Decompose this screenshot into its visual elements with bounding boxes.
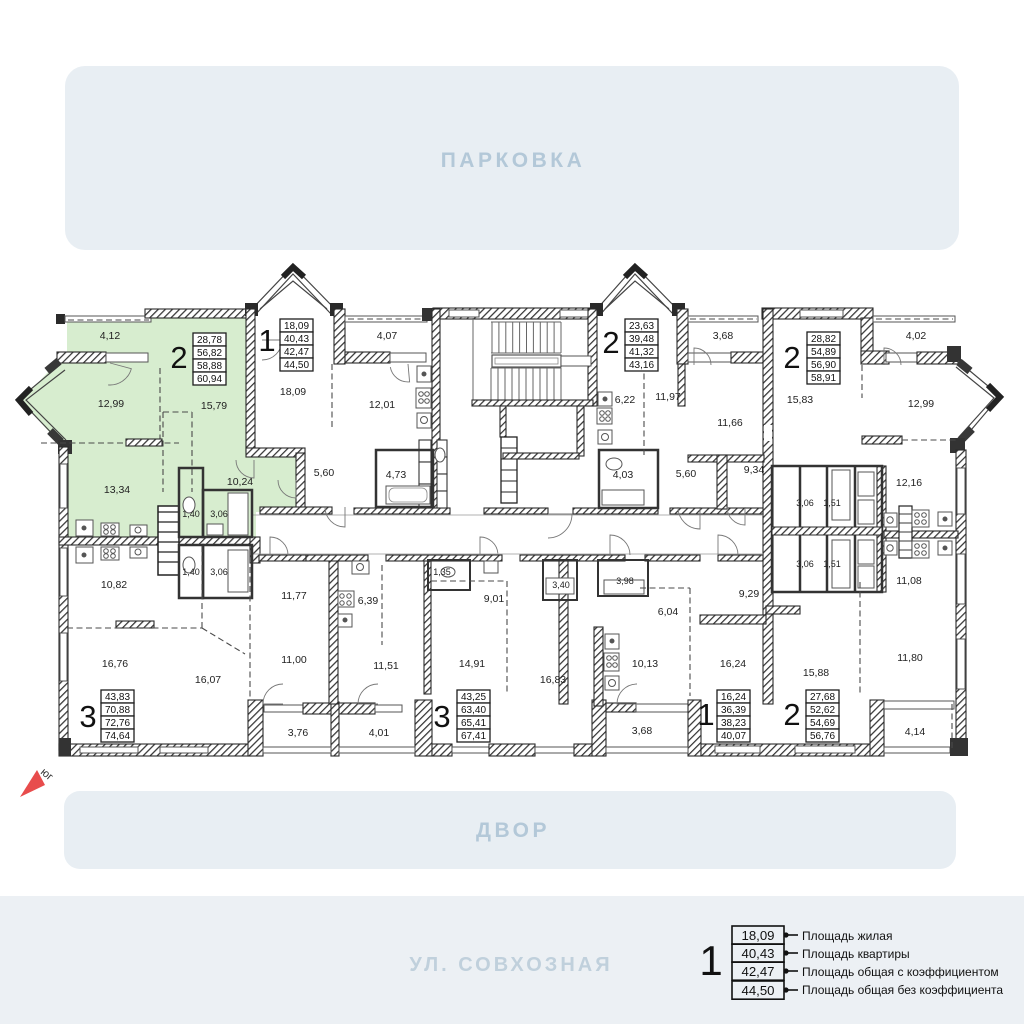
svg-text:ПАРКОВКА: ПАРКОВКА bbox=[441, 149, 586, 172]
svg-text:70,88: 70,88 bbox=[105, 705, 130, 716]
svg-text:18,09: 18,09 bbox=[741, 928, 774, 943]
svg-text:16,83: 16,83 bbox=[540, 674, 566, 686]
svg-text:Площадь квартиры: Площадь квартиры bbox=[802, 947, 910, 961]
svg-text:3,98: 3,98 bbox=[616, 576, 634, 586]
svg-text:16,24: 16,24 bbox=[721, 692, 746, 703]
svg-text:11,00: 11,00 bbox=[281, 654, 307, 666]
svg-text:11,77: 11,77 bbox=[281, 590, 307, 602]
svg-text:11,51: 11,51 bbox=[373, 660, 399, 672]
svg-text:5,60: 5,60 bbox=[676, 468, 697, 480]
svg-text:Площадь общая без коэффициента: Площадь общая без коэффициента bbox=[802, 983, 1003, 997]
svg-text:1,51: 1,51 bbox=[823, 498, 841, 508]
svg-text:60,94: 60,94 bbox=[197, 374, 222, 385]
svg-text:3: 3 bbox=[79, 699, 96, 734]
svg-text:4,12: 4,12 bbox=[100, 330, 121, 342]
svg-text:6,22: 6,22 bbox=[615, 394, 636, 406]
svg-text:44,50: 44,50 bbox=[284, 360, 309, 371]
svg-text:40,43: 40,43 bbox=[741, 946, 774, 961]
svg-text:72,76: 72,76 bbox=[105, 718, 130, 729]
svg-text:1: 1 bbox=[258, 323, 275, 358]
svg-text:40,07: 40,07 bbox=[721, 731, 746, 742]
svg-text:1: 1 bbox=[697, 697, 714, 732]
svg-text:2: 2 bbox=[602, 325, 619, 360]
svg-text:65,41: 65,41 bbox=[461, 718, 486, 729]
svg-text:16,24: 16,24 bbox=[720, 658, 746, 670]
svg-text:16,07: 16,07 bbox=[195, 674, 221, 686]
svg-text:12,01: 12,01 bbox=[369, 399, 395, 411]
svg-text:2: 2 bbox=[783, 340, 800, 375]
svg-text:54,69: 54,69 bbox=[810, 718, 835, 729]
svg-text:3,68: 3,68 bbox=[632, 725, 653, 737]
svg-text:Площадь общая с коэффициентом: Площадь общая с коэффициентом bbox=[802, 965, 999, 979]
svg-text:42,47: 42,47 bbox=[284, 347, 309, 358]
svg-text:10,13: 10,13 bbox=[632, 658, 658, 670]
svg-text:28,78: 28,78 bbox=[197, 335, 222, 346]
svg-text:1,35: 1,35 bbox=[433, 567, 451, 577]
svg-text:12,99: 12,99 bbox=[908, 398, 934, 410]
svg-text:2: 2 bbox=[170, 340, 187, 375]
svg-text:13,34: 13,34 bbox=[104, 484, 130, 496]
svg-text:56,82: 56,82 bbox=[197, 348, 222, 359]
svg-text:3,06: 3,06 bbox=[210, 509, 228, 519]
svg-text:10,24: 10,24 bbox=[227, 476, 253, 488]
svg-text:4,07: 4,07 bbox=[377, 330, 398, 342]
svg-text:58,88: 58,88 bbox=[197, 361, 222, 372]
svg-text:5,60: 5,60 bbox=[314, 467, 335, 479]
svg-text:42,47: 42,47 bbox=[741, 964, 774, 979]
svg-text:1,51: 1,51 bbox=[823, 559, 841, 569]
svg-text:3,06: 3,06 bbox=[796, 559, 814, 569]
svg-text:3,06: 3,06 bbox=[210, 567, 228, 577]
svg-text:4,02: 4,02 bbox=[906, 330, 927, 342]
svg-text:9,34: 9,34 bbox=[744, 464, 765, 476]
svg-text:15,88: 15,88 bbox=[803, 667, 829, 679]
svg-text:12,99: 12,99 bbox=[98, 398, 124, 410]
svg-text:43,83: 43,83 bbox=[105, 692, 130, 703]
svg-text:18,09: 18,09 bbox=[284, 321, 309, 332]
svg-text:10,82: 10,82 bbox=[101, 579, 127, 591]
svg-text:2: 2 bbox=[783, 697, 800, 732]
svg-text:52,62: 52,62 bbox=[810, 705, 835, 716]
svg-text:28,82: 28,82 bbox=[811, 334, 836, 345]
svg-text:36,39: 36,39 bbox=[721, 705, 746, 716]
svg-text:3,40: 3,40 bbox=[552, 580, 570, 590]
svg-text:58,91: 58,91 bbox=[811, 373, 836, 384]
svg-text:6,04: 6,04 bbox=[658, 606, 679, 618]
svg-text:3,06: 3,06 bbox=[796, 498, 814, 508]
svg-text:3,76: 3,76 bbox=[288, 727, 309, 739]
svg-text:11,08: 11,08 bbox=[896, 575, 922, 587]
svg-text:44,50: 44,50 bbox=[741, 983, 774, 998]
svg-text:14,91: 14,91 bbox=[459, 658, 485, 670]
svg-text:3: 3 bbox=[433, 699, 450, 734]
svg-text:15,79: 15,79 bbox=[201, 400, 227, 412]
svg-text:41,32: 41,32 bbox=[629, 347, 654, 358]
svg-text:1: 1 bbox=[699, 937, 722, 984]
svg-text:15,83: 15,83 bbox=[787, 394, 813, 406]
svg-text:6,39: 6,39 bbox=[358, 595, 379, 607]
svg-text:9,01: 9,01 bbox=[484, 593, 505, 605]
svg-text:ДВОР: ДВОР bbox=[476, 819, 550, 842]
svg-text:4,14: 4,14 bbox=[905, 726, 926, 738]
svg-text:3,68: 3,68 bbox=[713, 330, 734, 342]
svg-text:4,01: 4,01 bbox=[369, 727, 390, 739]
svg-text:16,76: 16,76 bbox=[102, 658, 128, 670]
svg-text:56,76: 56,76 bbox=[810, 731, 835, 742]
svg-text:40,43: 40,43 bbox=[284, 334, 309, 345]
svg-text:74,64: 74,64 bbox=[105, 731, 130, 742]
svg-text:9,29: 9,29 bbox=[739, 588, 760, 600]
svg-text:38,23: 38,23 bbox=[721, 718, 746, 729]
svg-text:43,25: 43,25 bbox=[461, 692, 486, 703]
svg-text:11,97: 11,97 bbox=[655, 391, 681, 403]
svg-text:67,41: 67,41 bbox=[461, 731, 486, 742]
svg-text:11,66: 11,66 bbox=[717, 417, 743, 429]
svg-text:18,09: 18,09 bbox=[280, 386, 306, 398]
svg-text:63,40: 63,40 bbox=[461, 705, 486, 716]
svg-text:4,03: 4,03 bbox=[613, 469, 634, 481]
svg-text:56,90: 56,90 bbox=[811, 360, 836, 371]
svg-text:УЛ. СОВХОЗНАЯ: УЛ. СОВХОЗНАЯ bbox=[409, 954, 612, 976]
svg-text:11,80: 11,80 bbox=[897, 652, 923, 664]
svg-text:54,89: 54,89 bbox=[811, 347, 836, 358]
svg-text:12,16: 12,16 bbox=[896, 477, 922, 489]
svg-text:23,63: 23,63 bbox=[629, 321, 654, 332]
svg-text:39,48: 39,48 bbox=[629, 334, 654, 345]
svg-text:4,73: 4,73 bbox=[386, 469, 407, 481]
svg-text:43,16: 43,16 bbox=[629, 360, 654, 371]
svg-text:1,40: 1,40 bbox=[182, 567, 200, 577]
svg-text:Площадь жилая: Площадь жилая bbox=[802, 929, 892, 943]
svg-text:1,40: 1,40 bbox=[182, 509, 200, 519]
svg-text:27,68: 27,68 bbox=[810, 692, 835, 703]
